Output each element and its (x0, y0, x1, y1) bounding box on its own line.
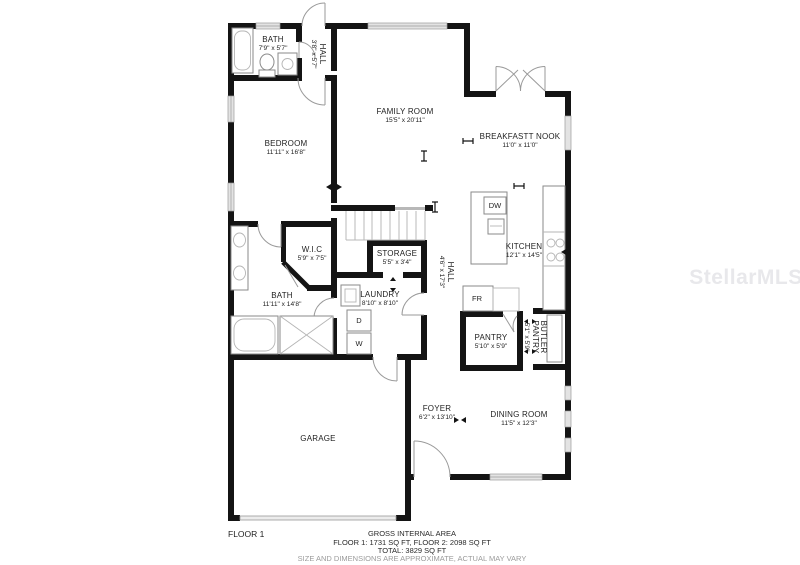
room-label-bedroom: BEDROOM (265, 139, 308, 148)
garage-door (240, 516, 396, 520)
floor-plan-page: BATH 7'9" x 5'7" HALL 3'8" x 5'7" BEDROO… (0, 0, 800, 565)
appliance-label-dishwasher: DW (489, 201, 502, 210)
room-dims-wic: 5'9" x 7'5" (298, 255, 327, 262)
room-dims-bedroom: 11'11" x 16'8" (267, 149, 307, 156)
butler-counter (547, 315, 562, 362)
room-label-pantry: PANTRY (475, 333, 508, 342)
kitchen-counter (543, 186, 565, 310)
room-dims-bath-lower: 11'11" x 14'8" (263, 301, 303, 308)
dimension-markers (326, 138, 566, 423)
room-label-breakfast-nook: BREAKFASTT NOOK (480, 132, 561, 141)
room-dims-hall-upper: 3'8" x 5'7" (310, 40, 317, 69)
room-label-bath-lower: BATH (271, 291, 293, 300)
appliance-label-washer: W (355, 339, 363, 348)
room-dims-butler-pantry: 5'1" x 5'9" (523, 323, 530, 352)
room-dims-foyer: 6'2" x 13'10" (419, 414, 456, 421)
room-label-family-room: FAMILY ROOM (376, 107, 433, 116)
sink (278, 53, 297, 75)
room-dims-breakfast-nook: 11'0" x 11'0" (502, 142, 538, 149)
footer-disclaimer: SIZE AND DIMENSIONS ARE APPROXIMATE, ACT… (298, 554, 527, 563)
room-dims-pantry: 5'10" x 5'9" (475, 343, 508, 350)
exterior-walls (228, 23, 571, 521)
room-label-wic: W.I.C (302, 245, 323, 254)
windows (228, 23, 571, 520)
staircase (346, 211, 425, 240)
room-label-bath-upper: BATH (262, 35, 284, 44)
room-label-hall-upper: HALL (318, 44, 327, 65)
floor-label: FLOOR 1 (228, 529, 265, 539)
room-label-dining-room: DINING ROOM (490, 410, 547, 419)
toilet (259, 70, 275, 77)
room-label-laundry: LAUNDRY (360, 290, 400, 299)
room-label-storage: STORAGE (377, 249, 417, 258)
stellar-mls-watermark: StellarMLS (688, 266, 800, 290)
footer: FLOOR 1 GROSS INTERNAL AREA FLOOR 1: 173… (228, 529, 526, 563)
island-sink (488, 219, 504, 234)
room-dims-hall-lower: 4'6" x 17'3" (438, 256, 445, 289)
room-dims-family-room: 15'5" x 20'11" (385, 117, 425, 124)
room-label-kitchen: KITCHEN (506, 242, 543, 251)
room-dims-bath-upper: 7'9" x 5'7" (259, 45, 288, 52)
room-dims-laundry: 8'10" x 8'10" (362, 300, 399, 307)
room-label-garage: GARAGE (300, 434, 335, 443)
floor-plan-canvas: BATH 7'9" x 5'7" HALL 3'8" x 5'7" BEDROO… (0, 0, 800, 565)
room-dims-storage: 5'5" x 3'4" (383, 259, 412, 266)
room-label-butler-pantry-line2: PANTRY (531, 321, 540, 354)
appliance-label-dryer: D (356, 316, 362, 325)
bathtub (231, 316, 278, 354)
footer-title: GROSS INTERNAL AREA (368, 529, 456, 538)
room-dims-dining-room: 11'5" x 12'3" (501, 420, 537, 427)
room-label-foyer: FOYER (423, 404, 452, 413)
room-dims-kitchen: 12'1" x 14'5" (506, 252, 543, 259)
counter (493, 288, 519, 311)
appliance-label-fridge: FR (472, 294, 483, 303)
room-label-hall-lower: HALL (446, 262, 455, 283)
laundry-sink (341, 285, 360, 306)
